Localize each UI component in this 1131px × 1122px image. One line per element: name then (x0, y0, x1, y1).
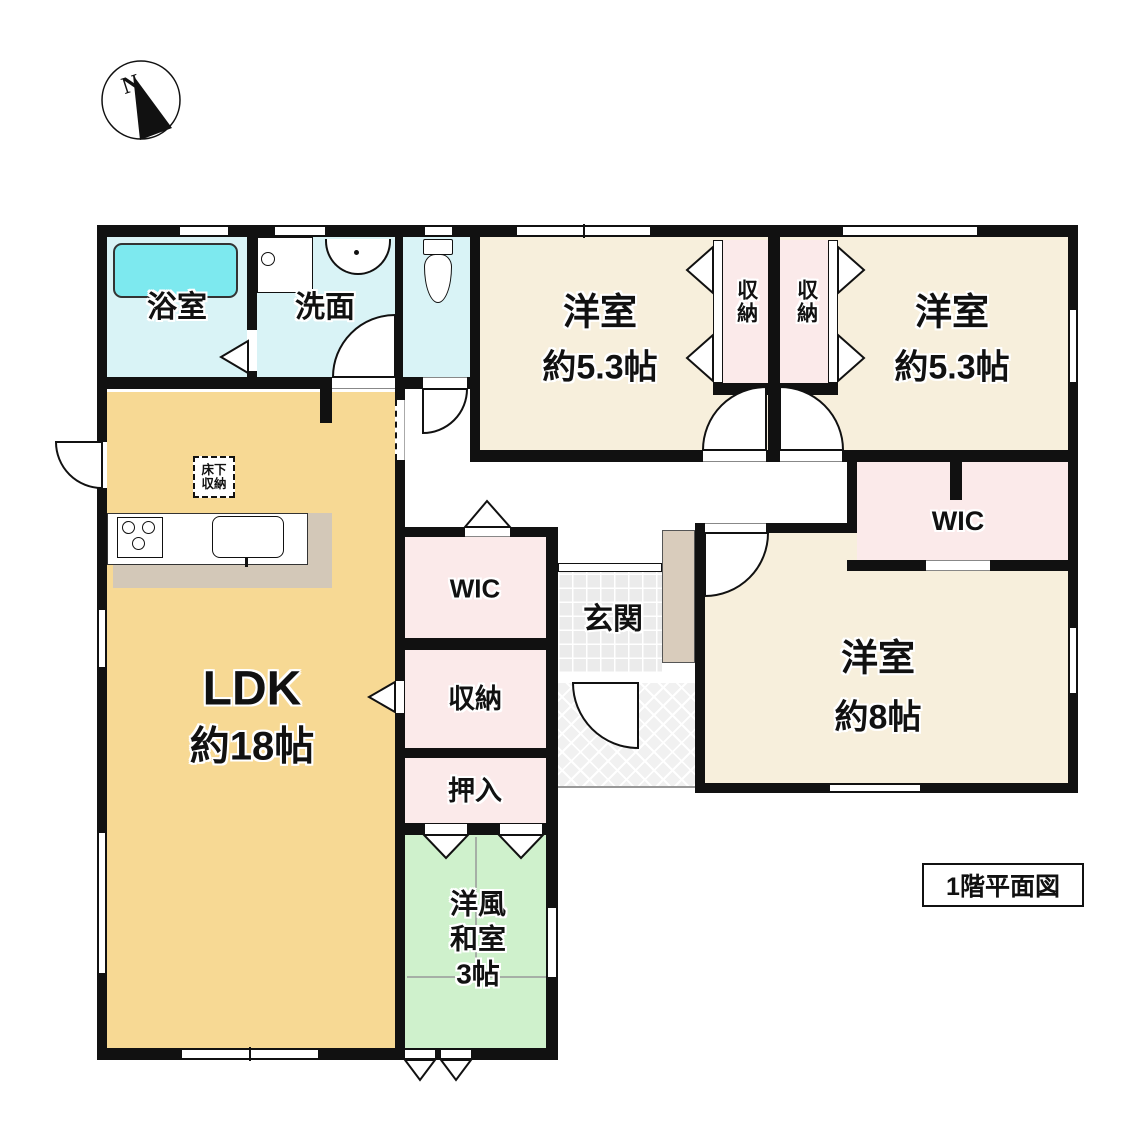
wall-closet-mid (768, 225, 780, 462)
wall-wic-right-bottom-b (990, 560, 1068, 571)
western-room-2-label: 洋室 約5.3帖 (894, 286, 1009, 395)
wall-rooms-bottom-a (472, 450, 703, 462)
wall-rooms-bottom-c (842, 450, 1068, 462)
compass-n-label: N (119, 69, 144, 99)
stove-burner-2 (142, 521, 155, 534)
washing-machine-dial (261, 252, 275, 266)
opening-room3-door (705, 523, 766, 533)
window-room1-top (517, 225, 650, 237)
wall-porch-right (695, 523, 705, 793)
window-green-bottom-2 (441, 1048, 471, 1060)
window-ldk-left-2 (97, 833, 107, 973)
opening-room1-door (703, 450, 766, 462)
oshiire-label: 押入 (448, 775, 502, 807)
window-room2-right (1068, 310, 1078, 382)
floor-plan: N 浴室 洗面 洋室 約5.3帖 洋室 約5.3帖 収納 収納 WIC 洋室 約… (0, 0, 1131, 1122)
wall-oshiire-bottom-b (468, 823, 499, 835)
toilet-tank (423, 239, 453, 255)
kitchen-sink (212, 516, 284, 558)
closet-top-2-label: 収納 (793, 279, 818, 325)
opening-washroom (332, 377, 395, 389)
shoe-cabinet (662, 530, 695, 663)
window-room3-bottom (830, 783, 920, 793)
wall-center-col-div2 (405, 748, 546, 758)
opening-wic-center-door (465, 527, 510, 537)
underfloor-storage-label: 床下 収納 (201, 463, 226, 491)
closet-top-1-label: 収納 (733, 279, 758, 325)
opening-wic-right-door (926, 560, 990, 571)
wall-wic-right-left (847, 450, 857, 533)
wall-bottom-left (97, 1048, 558, 1060)
japanese-room-label: 洋風 和室 3帖 (450, 887, 506, 992)
compass-needle (133, 75, 172, 140)
wall-green-right (546, 527, 558, 1060)
wall-ldk-right (395, 389, 405, 1048)
door-arc-toilet (423, 389, 467, 433)
window-green-right (546, 908, 558, 977)
kitchen-faucet (245, 557, 248, 567)
wall-bath-wash-divider-stub (247, 371, 257, 377)
window-room3-right (1068, 628, 1078, 693)
wall-wic-right-stub (950, 462, 962, 500)
entrance-step (558, 563, 662, 572)
kitchen-counter-base-right (308, 513, 332, 588)
wall-rooms-bottom-b (766, 450, 780, 462)
washroom-label: 洗面 (295, 290, 355, 326)
wic-center-label: WIC (450, 573, 501, 604)
window-toilet-top (425, 225, 452, 237)
wall-toilet-room1 (470, 225, 480, 462)
compass: N (98, 58, 188, 148)
opening-room2-door (780, 450, 842, 462)
door-panel-closet1 (713, 240, 723, 383)
wall-center-col-top-b (510, 527, 558, 537)
window-vent-green-2 (441, 1060, 471, 1080)
door-panel-closet2 (828, 240, 838, 383)
ldk-label: LDK 約18帖 (190, 662, 315, 775)
bathroom-label: 浴室 (147, 290, 207, 326)
window-vent-green-1 (405, 1060, 435, 1080)
window-mullion (583, 224, 585, 238)
porch-floor (558, 683, 695, 786)
wall-closet1-bottom (713, 383, 768, 395)
folding-door-wic-center (465, 501, 510, 527)
door-arc-kitchen-backdoor (56, 442, 102, 488)
wall-hall-south (766, 523, 857, 533)
window-wash-top (275, 225, 325, 237)
window-room2-top (843, 225, 977, 237)
stove-burner-1 (122, 521, 135, 534)
wall-oshiire-bottom-a (395, 823, 424, 835)
door-panel-oshiire-2 (499, 823, 543, 835)
entrance-label: 玄関 (583, 602, 643, 638)
wall-center-col-div1 (405, 638, 546, 650)
wall-center-col-top-a (395, 527, 465, 537)
window-mullion (249, 1047, 251, 1061)
door-panel-storage-center (395, 680, 405, 714)
wall-wash-toilet (395, 225, 403, 389)
porch-edge-line (558, 786, 695, 788)
door-panel-oshiire-1 (424, 823, 468, 835)
wash-basin-drain (354, 250, 359, 255)
western-room-1-label: 洋室 約5.3帖 (542, 286, 657, 395)
wic-right-label: WIC (932, 505, 984, 537)
window-green-bottom-1 (405, 1048, 435, 1060)
stove-burner-3 (132, 537, 145, 550)
wall-bath-wash-divider (247, 225, 257, 330)
wall-wet-bottom-a (97, 377, 332, 389)
wall-ldk-stub (320, 389, 332, 423)
opening-ldk-hall (395, 400, 405, 460)
compass-circle (102, 61, 180, 139)
wall-wic-right-bottom-a (847, 560, 926, 571)
window-bath-top (180, 225, 228, 237)
plan-title-box: 1階平面図 (922, 863, 1084, 907)
kitchen-counter-base-bottom (113, 565, 332, 588)
wall-closet2-bottom (780, 383, 838, 395)
opening-kitchen-backdoor (97, 442, 107, 488)
storage-center-label: 収納 (448, 683, 502, 715)
western-room-3-label: 洋室 約8帖 (835, 630, 922, 747)
opening-toilet-door (423, 377, 467, 389)
wall-oshiire-bottom-c (543, 823, 558, 835)
window-ldk-bottom (182, 1048, 318, 1060)
plan-title: 1階平面図 (946, 867, 1060, 903)
window-ldk-left-1 (97, 610, 107, 667)
